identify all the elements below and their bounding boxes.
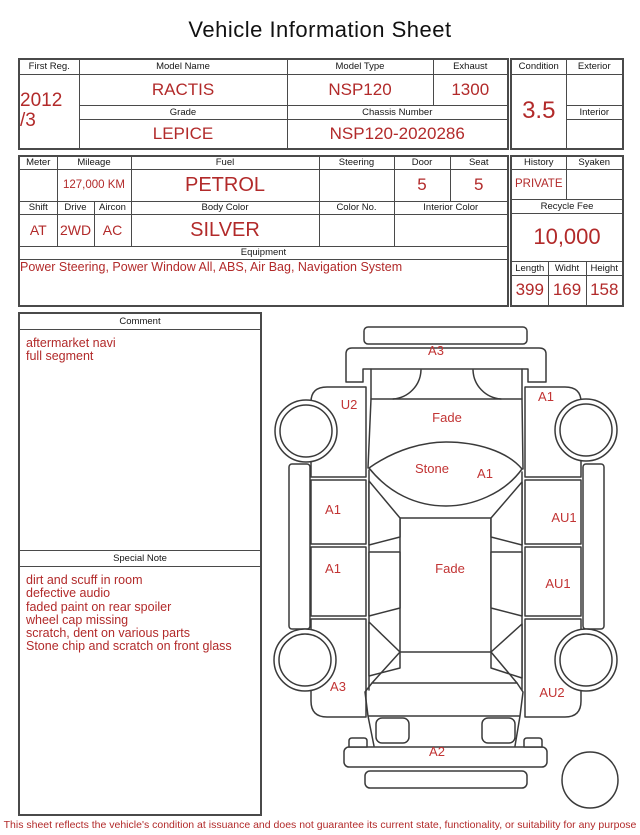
rear-bumper-left-tab: [349, 738, 367, 747]
interior-color-value: [394, 214, 508, 246]
syaken-label: Syaken: [566, 156, 623, 169]
damage-label-right-rear-door: AU1: [545, 576, 570, 591]
rear-bumper-right-tab: [524, 738, 542, 747]
front-right-wheel: [555, 399, 617, 461]
recycle-fee-label: Recycle Fee: [511, 199, 623, 213]
damage-label-hood: Fade: [432, 410, 462, 425]
history-value: PRIVATE: [511, 169, 566, 199]
first-reg-label: First Reg.: [19, 59, 79, 74]
damage-label-left-front-fender: U2: [341, 397, 358, 412]
aircon-value: AC: [94, 214, 131, 246]
drive-label: Drive: [57, 201, 94, 214]
damage-label-right-front-door: AU1: [551, 510, 576, 525]
left-quarter-window: [369, 622, 400, 676]
interior-value: [566, 119, 623, 149]
front-left-wheel: [275, 400, 337, 462]
interior-color-label: Interior Color: [394, 201, 508, 214]
damage-label-left-rear-quarter: A3: [330, 679, 346, 694]
drive-value: 2WD: [57, 214, 94, 246]
meter-value: [19, 169, 57, 201]
car-damage-diagram: A3 U2 A1 Fade Stone A1 A1 AU1 A1 Fade AU…: [270, 315, 628, 817]
first-reg-value: 2012/3: [19, 74, 79, 149]
color-no-label: Color No.: [319, 201, 394, 214]
grade-value: LEPICE: [79, 119, 287, 149]
notes-column: Comment aftermarket navi full segment Sp…: [18, 312, 262, 816]
fuel-value: PETROL: [131, 169, 319, 201]
rear-bumper: [344, 747, 547, 767]
damage-label-rear-bumper: A2: [429, 744, 445, 759]
history-table: History Syaken PRIVATE Recycle Fee 10,00…: [510, 155, 624, 307]
chassis-number-label: Chassis Number: [287, 105, 508, 119]
condition-value: 3.5: [511, 74, 566, 149]
front-bumper: [346, 348, 546, 382]
left-rear-door: [311, 547, 366, 616]
damage-label-left-front-door: A1: [325, 502, 341, 517]
steering-label: Steering: [319, 156, 394, 169]
damage-label-front-bumper: A3: [428, 343, 444, 358]
width-label: Widht: [548, 261, 586, 275]
damage-label-right-front-fender: A1: [538, 389, 554, 404]
disclaimer-text: This sheet reflects the vehicle's condit…: [0, 819, 640, 831]
door-value: 5: [394, 169, 450, 201]
model-type-label: Model Type: [287, 59, 433, 74]
left-headlight-arc: [393, 370, 421, 399]
left-tail-pocket: [376, 718, 409, 743]
mileage-value: 127,000 KM: [57, 169, 131, 201]
equipment-value: Power Steering, Power Window All, ABS, A…: [19, 259, 508, 306]
special-note-header: Special Note: [20, 550, 260, 567]
exhaust-label: Exhaust: [433, 59, 508, 74]
length-label: Length: [511, 261, 548, 275]
rear-bottom-bar: [365, 771, 527, 788]
right-rocker: [583, 464, 604, 629]
right-rear-window: [491, 552, 522, 616]
exterior-value: [566, 74, 623, 105]
rear-right-wheel: [555, 629, 617, 691]
front-top-bar: [364, 327, 527, 344]
rear-left-wheel: [274, 629, 336, 691]
vehicle-spec-table: Meter Mileage Fuel Steering Door Seat 12…: [18, 155, 509, 307]
exterior-label: Exterior: [566, 59, 623, 74]
condition-label: Condition: [511, 59, 566, 74]
aircon-label: Aircon: [94, 201, 131, 214]
damage-label-windshield-right: A1: [477, 466, 493, 481]
vehicle-identity-table: First Reg. Model Name Model Type Exhaust…: [18, 58, 509, 150]
exhaust-value: 1300: [433, 74, 508, 105]
seat-value: 5: [450, 169, 508, 201]
roof-panel: [400, 518, 491, 652]
right-tail-pocket: [482, 718, 515, 743]
special-note-text: dirt and scuff in room defective audio f…: [20, 567, 260, 661]
comment-body: aftermarket navi full segment: [20, 330, 260, 550]
left-rocker: [289, 464, 310, 629]
height-value: 158: [586, 275, 623, 306]
body-color-value: SILVER: [131, 214, 319, 246]
steering-value: [319, 169, 394, 201]
meter-label: Meter: [19, 156, 57, 169]
spare-wheel: [562, 752, 618, 808]
damage-label-right-rear-quarter: AU2: [539, 685, 564, 700]
recycle-fee-value: 10,000: [511, 213, 623, 261]
door-label: Door: [394, 156, 450, 169]
model-name-value: RACTIS: [79, 74, 287, 105]
body-color-label: Body Color: [131, 201, 319, 214]
vehicle-information-sheet: Vehicle Information Sheet First Reg. Mod…: [0, 0, 640, 835]
right-headlight-arc: [473, 370, 501, 399]
model-name-label: Model Name: [79, 59, 287, 74]
fuel-label: Fuel: [131, 156, 319, 169]
interior-label: Interior: [566, 105, 623, 119]
seat-label: Seat: [450, 156, 508, 169]
syaken-value: [566, 169, 623, 199]
special-note-body: dirt and scuff in room defective audio f…: [20, 567, 260, 814]
length-value: 399: [511, 275, 548, 306]
damage-label-roof: Fade: [435, 561, 465, 576]
history-label: History: [511, 156, 566, 169]
damage-label-windshield-stone: Stone: [415, 461, 449, 476]
mileage-label: Mileage: [57, 156, 131, 169]
damage-label-left-rear-door: A1: [325, 561, 341, 576]
shift-value: AT: [19, 214, 57, 246]
model-type-value: NSP120: [287, 74, 433, 105]
hood-leading-edge: [371, 369, 522, 399]
first-reg-year: 2012: [20, 90, 62, 111]
left-rear-window: [369, 552, 400, 616]
comment-header: Comment: [20, 314, 260, 330]
width-value: 169: [548, 275, 586, 306]
page-title: Vehicle Information Sheet: [0, 17, 640, 43]
condition-table: Condition Exterior 3.5 Interior: [510, 58, 624, 150]
shift-label: Shift: [19, 201, 57, 214]
chassis-number-value: NSP120-2020286: [287, 119, 508, 149]
equipment-label: Equipment: [19, 246, 508, 259]
first-reg-month: /3: [20, 110, 36, 131]
comment-text: aftermarket navi full segment: [20, 330, 260, 371]
height-label: Height: [586, 261, 623, 275]
color-no-value: [319, 214, 394, 246]
grade-label: Grade: [79, 105, 287, 119]
